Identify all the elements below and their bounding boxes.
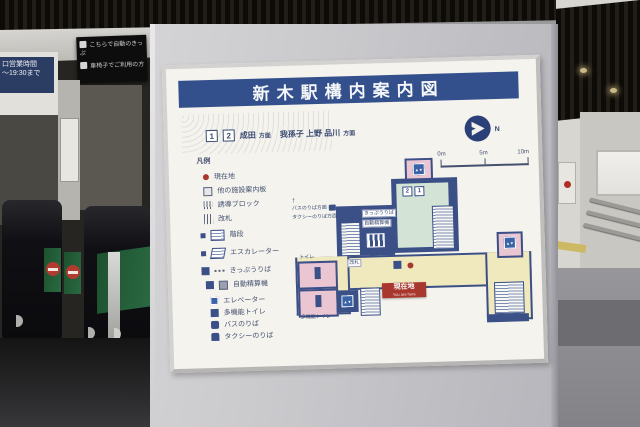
floor-map: ▲▼ 2 1 きっぷうりば 自動精算機	[287, 155, 538, 354]
hours-sign-line1: 口営業時間	[2, 60, 52, 69]
taxi-direction-label: タクシーのりば方面	[292, 214, 337, 221]
destination-left-suffix: 方面	[259, 130, 271, 139]
stairs-icon	[210, 229, 224, 240]
stairwell-base	[556, 300, 640, 346]
board-title: 新木駅構内案内図	[178, 71, 519, 107]
pillar-left-edge	[150, 24, 155, 427]
poster	[60, 118, 79, 182]
platform-badge-2: 2	[402, 186, 412, 196]
legend-item: 改札	[204, 213, 232, 224]
platform-1-badge: 1	[206, 130, 218, 142]
legend-item: バスのりば	[211, 319, 259, 330]
gate-direction-sign: こちらで自動のきっぷ 車椅子でご利用の方	[76, 35, 148, 83]
legend-item: 自動精算機	[206, 278, 268, 290]
wheelchair-icon	[80, 62, 87, 69]
gate-flap-left	[44, 248, 61, 292]
destination-right-suffix: 方面	[343, 127, 355, 136]
elevator-pictogram: ▲▼	[413, 163, 425, 175]
gate-sign-line2: 車椅子でご利用の方	[80, 60, 144, 71]
current-location-dot-icon	[203, 174, 209, 180]
station-photo: 口営業時間 〜19:30まで こちらで自動のきっぷ 車椅子でご利用の方	[0, 0, 640, 427]
legend-item: 多機能トイレ	[211, 307, 266, 319]
ticket-icon	[79, 41, 86, 48]
stairs-marker-icon	[200, 233, 205, 238]
map-gate-icon	[367, 233, 385, 247]
legend: 凡例 現在地 他の施設案内板 誘導ブロック 改札 階段 エスカレーター きっぷう…	[196, 154, 301, 347]
map-fare-machine-label: 自動精算機	[362, 219, 391, 228]
hours-sign: 口営業時間 〜19:30まで	[0, 57, 54, 93]
map-stairs-left-exit	[360, 287, 381, 316]
fare-adjustment-machine-icon	[206, 281, 214, 289]
map-elevator-right: ▲▼	[497, 231, 524, 258]
platform-2-badge: 2	[223, 129, 235, 141]
legend-item: 現在地	[203, 171, 235, 182]
legend-item: 誘導ブロック	[204, 199, 260, 211]
map-info-post	[393, 261, 401, 269]
ticket-office-dash-icon	[215, 270, 225, 272]
alarm-panel	[558, 162, 576, 204]
elevator-icon	[210, 297, 218, 305]
elevator-pictogram: ▲▼	[341, 295, 353, 307]
elevator-pictogram: ▲▼	[504, 237, 516, 249]
tactile-block-icon	[204, 201, 213, 209]
alarm-button	[564, 181, 571, 188]
accessible-toilet-icon	[211, 309, 219, 317]
legend-item: エスカレーター	[201, 246, 279, 258]
up-arrow: ↑	[292, 196, 352, 204]
map-toilet	[297, 261, 338, 290]
legend-item: 他の施設案内板	[203, 184, 266, 196]
map-multi-toilet-label: 多機能トイレ	[301, 314, 331, 321]
map-gate-label: 改札	[347, 259, 361, 267]
fare-machine-icon2	[219, 280, 228, 289]
right-ceiling	[556, 0, 640, 121]
ceiling-light	[610, 88, 617, 93]
no-entry-icon	[46, 262, 60, 276]
legend-item: きっぷうりば	[201, 264, 271, 276]
destination-right: 我孫子 上野 品川	[280, 127, 341, 140]
escalator-marker-icon	[201, 251, 206, 256]
handrail	[583, 223, 640, 243]
map-toilet-label: トイレ	[299, 254, 314, 260]
left-floor	[0, 338, 168, 427]
bus-direction-label: バスのりば方面	[292, 205, 327, 212]
legend-item: エレベーター	[210, 295, 265, 307]
toilet-pictogram	[314, 267, 320, 279]
platform-number-badges: 2 1	[396, 182, 448, 196]
hours-sign-line2: 〜19:30まで	[2, 69, 52, 78]
compass-north-label: N	[495, 126, 500, 133]
taxi-icon	[339, 213, 346, 219]
map-directions: ↑ バスのりば方面 タクシーのりば方面	[292, 196, 353, 221]
info-board-icon	[203, 186, 212, 195]
gate-sign-line1: こちらで自動のきっぷ	[79, 39, 144, 58]
compass-icon	[464, 115, 491, 142]
legend-item: タクシーのりば	[211, 330, 273, 342]
ceiling-light	[580, 68, 587, 73]
gate-flap-right	[64, 252, 81, 294]
map-elevator-left: ▲▼	[336, 290, 359, 313]
you-are-here-sub: You are here	[382, 291, 426, 297]
pillar-right-edge	[551, 24, 558, 427]
no-entry-icon	[66, 265, 80, 279]
ticket-gate-icon	[204, 214, 213, 224]
escalator-icon	[210, 247, 226, 258]
legend-item: 階段	[200, 229, 243, 240]
bus-stop-icon	[211, 321, 219, 329]
destination-left: 成田	[240, 129, 256, 140]
map-stairs-platform	[432, 205, 455, 250]
map-stairs-right-exit	[494, 281, 525, 314]
gate-side-panel	[97, 246, 152, 314]
platform-badge-1: 1	[414, 186, 424, 196]
ticket-office-icon	[201, 267, 209, 275]
map-ticket-office-label: きっぷうりば	[362, 209, 396, 218]
legend-header: 凡例	[196, 156, 210, 166]
taxi-stand-icon	[211, 333, 219, 341]
left-background-wall2	[80, 85, 142, 210]
bus-direction-row: バスのりば方面	[292, 204, 352, 212]
map-stairs-concourse	[340, 222, 361, 257]
bus-icon	[329, 205, 336, 211]
map-right-base	[487, 313, 529, 322]
window	[596, 150, 640, 196]
you-are-here-badge: 現在地 You are here	[382, 282, 426, 298]
right-floor	[556, 268, 640, 427]
toilet-pictogram	[315, 295, 321, 307]
station-map-board: 新木駅構内案内図 1 2 成田 方面 我孫子 上野 品川 方面 N 0m 5m …	[162, 55, 548, 373]
